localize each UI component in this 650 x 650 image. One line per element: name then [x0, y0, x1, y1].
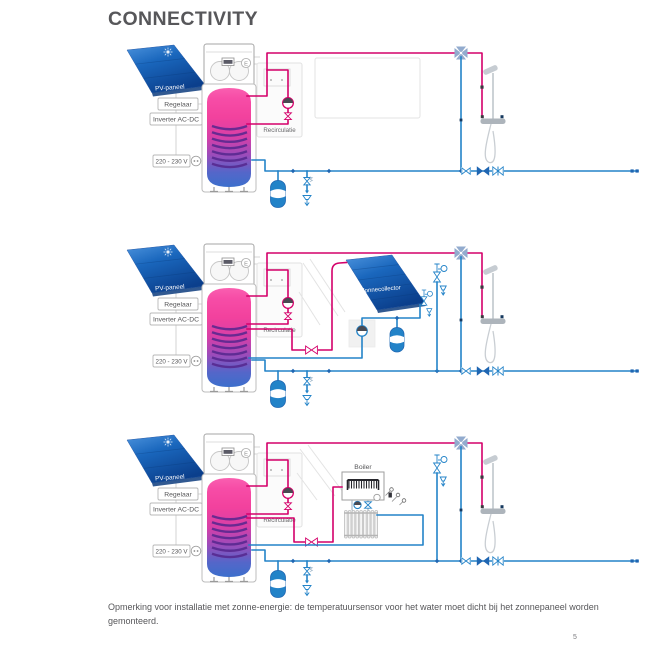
diagrams-canvas: PV-paneel Regelaar Inverter AC-DC 220 - … — [0, 0, 650, 650]
boiler: Boiler — [342, 464, 384, 501]
option-placeholder-outline — [299, 259, 345, 325]
solar-collector: Zonnecollector — [346, 255, 426, 313]
option-placeholder-outline — [297, 445, 343, 500]
diagram-1-extras — [315, 58, 420, 118]
radiator — [344, 511, 378, 539]
boiler-label: Boiler — [354, 464, 372, 471]
solar-expansion-vessel — [390, 328, 404, 353]
valve-icon — [365, 502, 372, 508]
installation-note: Opmerking voor installatie met zonne-ene… — [108, 601, 603, 628]
sun-glare-icon — [401, 259, 409, 267]
option-placeholder-outline — [315, 58, 420, 118]
page-number: 5 — [573, 634, 577, 641]
diagram-1-heat-pump — [127, 44, 639, 208]
sensor-glyphs — [386, 488, 406, 505]
